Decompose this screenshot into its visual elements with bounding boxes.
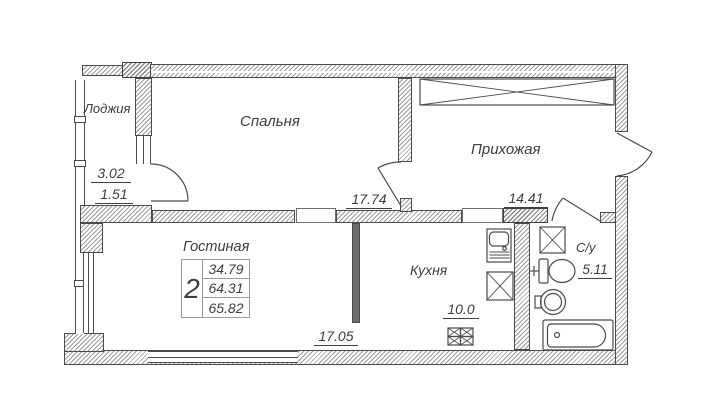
loggia-area-full: 3.02 [91,165,131,183]
bedroom-label: Спальня [240,113,300,130]
bathtub-icon [543,320,613,350]
area-without-loggia-value: 64.31 [203,279,249,298]
bedroom-area: 17.74 [346,191,392,209]
rooms-count: 2 [182,260,203,317]
living-label: Гостиная [183,239,249,255]
wardrobe-icon [420,79,614,105]
loggia-label: Лоджия [84,101,130,116]
bathroom-label: С/у [576,240,596,255]
kitchen-label: Кухня [410,262,447,278]
bathroom-door-arc [552,198,600,221]
toilet-icon [530,259,575,283]
living-area-value: 34.79 [203,260,249,279]
bathroom-sink-icon [535,290,566,315]
loggia-area-half: 1.51 [95,186,133,204]
floor-plan: Лоджия 3.02 1.51 Спальня 17.74 Прихожая … [0,0,713,407]
kitchen-area: 10.0 [443,301,479,319]
balcony-door-arc [151,164,188,201]
bathroom-area: 5.11 [578,262,612,279]
kitchen-sink-icon [487,229,511,262]
apartment-summary-table: 2 34.79 64.31 65.82 [181,259,250,318]
living-area: 17.05 [314,328,358,346]
total-area-value: 65.82 [203,298,249,317]
stove-icon [448,328,473,345]
hallway-label: Прихожая [471,141,541,158]
entrance-door-arc [617,133,652,176]
kitchen-vent-box-icon [487,272,513,300]
bathroom-vent-box-icon [540,227,565,253]
hallway-area: 14.41 [504,190,548,208]
